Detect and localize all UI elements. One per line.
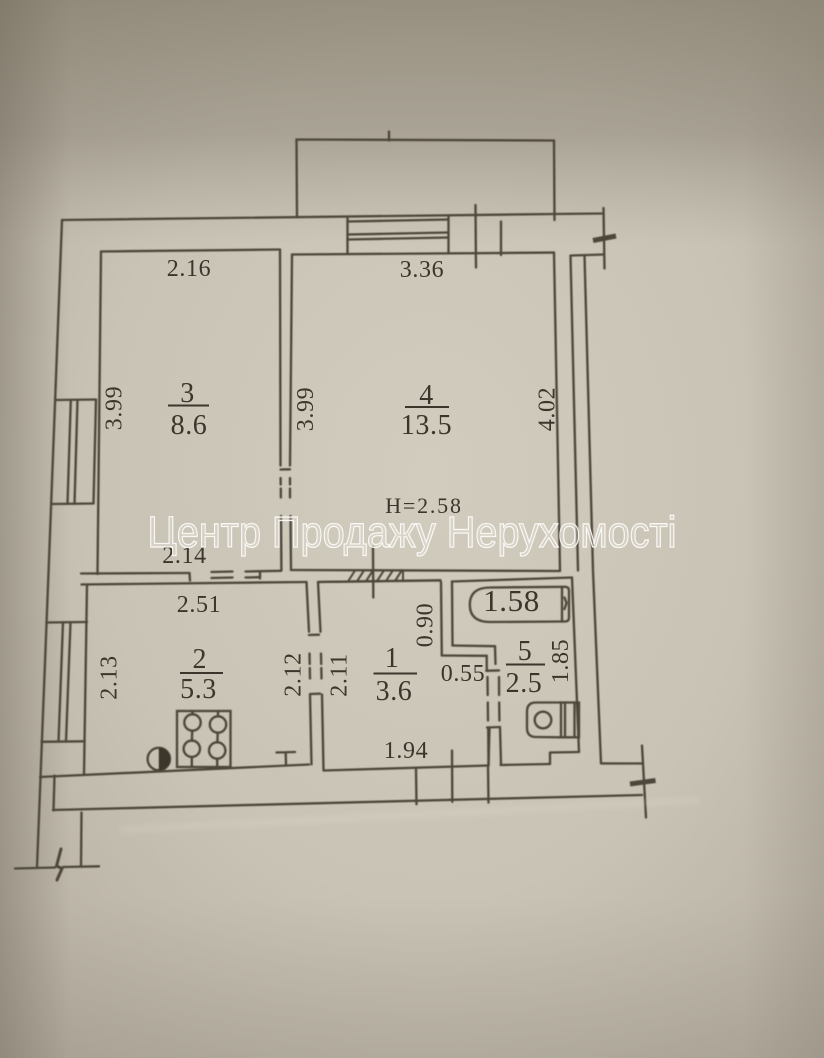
svg-text:2.13: 2.13	[97, 655, 123, 699]
svg-text:3.99: 3.99	[102, 386, 128, 430]
svg-text:4.02: 4.02	[535, 387, 561, 431]
svg-text:5: 5	[518, 636, 533, 667]
svg-text:2.11: 2.11	[327, 653, 353, 697]
svg-text:1.85: 1.85	[548, 639, 574, 683]
svg-text:5.3: 5.3	[180, 674, 217, 705]
svg-text:8.6: 8.6	[171, 410, 208, 441]
svg-text:2: 2	[192, 644, 207, 675]
svg-text:13.5: 13.5	[401, 410, 452, 441]
svg-text:3.6: 3.6	[376, 676, 413, 707]
svg-text:3: 3	[180, 378, 195, 409]
svg-text:Центр Продажу Нерухомості: Центр Продажу Нерухомості	[148, 508, 677, 557]
svg-text:1.58: 1.58	[483, 583, 540, 618]
svg-text:1: 1	[385, 643, 400, 674]
svg-text:2.5: 2.5	[506, 668, 543, 699]
svg-text:2.51: 2.51	[177, 592, 221, 618]
svg-text:2.16: 2.16	[167, 256, 211, 282]
svg-text:0.55: 0.55	[441, 661, 485, 687]
svg-text:1.94: 1.94	[384, 738, 428, 764]
svg-text:0.90: 0.90	[413, 603, 439, 647]
svg-text:2.12: 2.12	[281, 652, 307, 696]
svg-text:3.99: 3.99	[293, 387, 319, 431]
svg-text:3.36: 3.36	[400, 257, 444, 283]
